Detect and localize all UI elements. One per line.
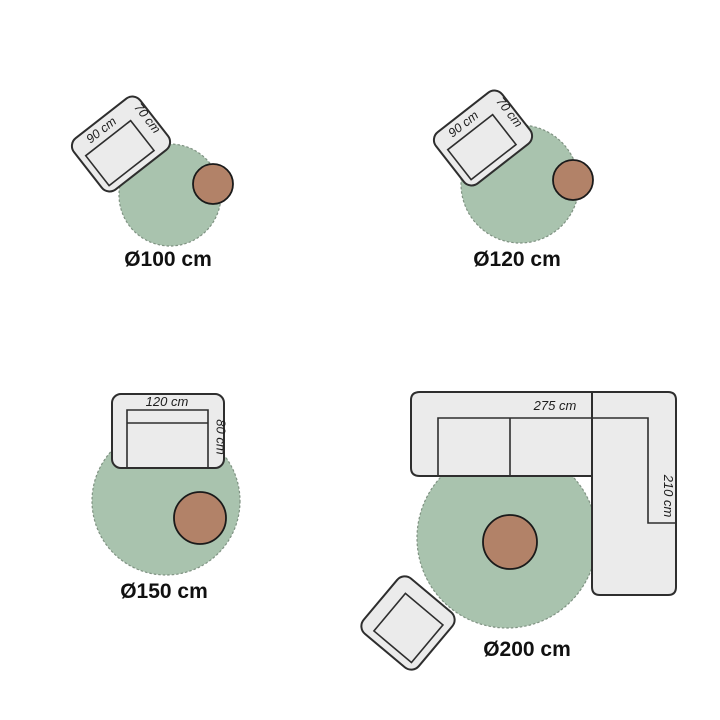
panel-rug-150: 120 cm 80 cm Ø150 cm: [92, 394, 240, 603]
rug-size-guide: 90 cm 70 cm Ø100 cm 90 cm 70 cm Ø120 cm: [0, 0, 720, 720]
panel-rug-200: 275 cm 210 cm Ø200 cm: [357, 392, 676, 674]
sofa-depth-label: 210 cm: [661, 474, 676, 518]
sofa-icon: 120 cm 80 cm: [112, 394, 229, 468]
rug-150-size-label: Ø150 cm: [120, 580, 208, 603]
side-table-icon: [553, 160, 593, 200]
rug-120-size-label: Ø120 cm: [473, 248, 561, 271]
coffee-table-icon: [483, 515, 537, 569]
size-guide-canvas: 90 cm 70 cm Ø100 cm 90 cm 70 cm Ø120 cm: [0, 0, 720, 720]
rug-100-size-label: Ø100 cm: [124, 248, 212, 271]
panel-rug-120: 90 cm 70 cm Ø120 cm: [430, 86, 593, 271]
sofa-width-label: 120 cm: [146, 394, 189, 409]
panel-rug-100: 90 cm 70 cm Ø100 cm: [68, 92, 233, 271]
sofa-width-label: 275 cm: [533, 398, 577, 413]
sofa-depth-label: 80 cm: [214, 419, 229, 455]
rug-200-size-label: Ø200 cm: [483, 638, 571, 661]
side-table-icon: [193, 164, 233, 204]
coffee-table-icon: [174, 492, 226, 544]
